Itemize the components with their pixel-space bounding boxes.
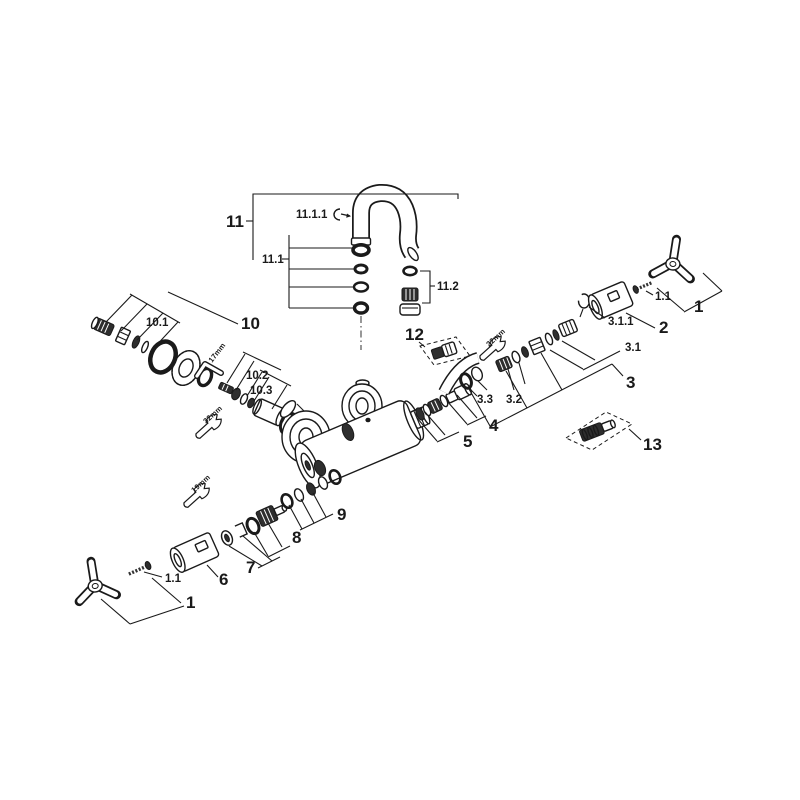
part-label-11-1-1: 11.1.1: [296, 209, 328, 221]
service-kit-12-part: [431, 342, 458, 361]
retaining-clip-icon: [334, 209, 351, 220]
leader-6: [207, 565, 218, 577]
part-label-10: 10: [241, 314, 260, 333]
part-label-1-left: 1: [186, 593, 195, 612]
cross-handle-right: [653, 237, 695, 279]
part-label-1-1-right: 1.1: [655, 291, 672, 303]
hex-nut-3-1: [529, 337, 545, 354]
part-label-11-1: 11.1: [262, 254, 284, 266]
leader-11-2: [420, 271, 435, 303]
grub-screw: [218, 382, 234, 394]
part-label-10-1: 10.1: [146, 317, 169, 329]
part-label-10-2: 10.2: [246, 370, 268, 382]
knurled-adapter-3-2: [495, 356, 512, 372]
part-label-2: 2: [659, 318, 668, 337]
aerator-housing: [400, 304, 420, 315]
exploded-parts-diagram: 11 11.1 11.1.1 11.2: [0, 0, 800, 800]
large-o-ring: [146, 338, 181, 377]
part-label-6: 6: [219, 570, 228, 589]
aerator-stack: [400, 267, 420, 315]
part-label-10-3: 10.3: [250, 385, 272, 397]
aerator-insert: [402, 288, 418, 301]
part-label-3-1-1: 3.1.1: [608, 316, 634, 328]
leader-11-1: [282, 235, 354, 308]
part-label-8: 8: [292, 528, 301, 547]
faucet-body-group: [278, 380, 438, 491]
knurled-cylinder-3-1: [558, 319, 578, 337]
part-label-3-1: 3.1: [625, 342, 642, 354]
washer: [140, 341, 149, 354]
part-label-3: 3: [626, 373, 635, 392]
part-label-3-3: 3.3: [477, 394, 493, 406]
handle-sleeve-2: [586, 281, 634, 321]
washer-3-1a: [544, 332, 554, 345]
hex-nut: [115, 327, 130, 345]
part-label-11-2: 11.2: [437, 281, 459, 293]
clip-3-1-1: [579, 294, 590, 317]
leader-1-1-right: [646, 291, 653, 295]
leader-10: [168, 292, 238, 324]
part-label-4: 4: [489, 416, 499, 435]
service-kit-13: [566, 412, 641, 450]
wall-nipple: [90, 316, 115, 336]
cartridge-cap-7: [219, 523, 247, 547]
part-label-5: 5: [463, 432, 472, 451]
ring-3-2a: [511, 350, 522, 364]
part-label-11: 11: [226, 212, 244, 231]
tool-label-17mm: 17mm: [206, 341, 227, 364]
part-label-12: 12: [405, 325, 424, 344]
diagram-canvas: 11 11.1 11.1.1 11.2: [0, 0, 800, 800]
part-label-9: 9: [337, 505, 346, 524]
part-label-3-2: 3.2: [506, 394, 522, 406]
ring-3-2b: [520, 346, 530, 358]
leader-1-1-left: [144, 572, 162, 577]
part-label-13: 13: [643, 435, 662, 454]
part-label-1-right: 1: [694, 297, 703, 316]
spout-oring-stack: [353, 245, 369, 313]
body-screw-dot: [365, 418, 370, 423]
handle-sleeve-6: [167, 532, 219, 574]
part-label-7: 7: [246, 558, 255, 577]
cross-handle-left: [71, 558, 116, 603]
handle-screw-right: [632, 279, 653, 294]
handle-screw-left: [127, 561, 152, 578]
part-label-1-1-left: 1.1: [165, 573, 182, 585]
